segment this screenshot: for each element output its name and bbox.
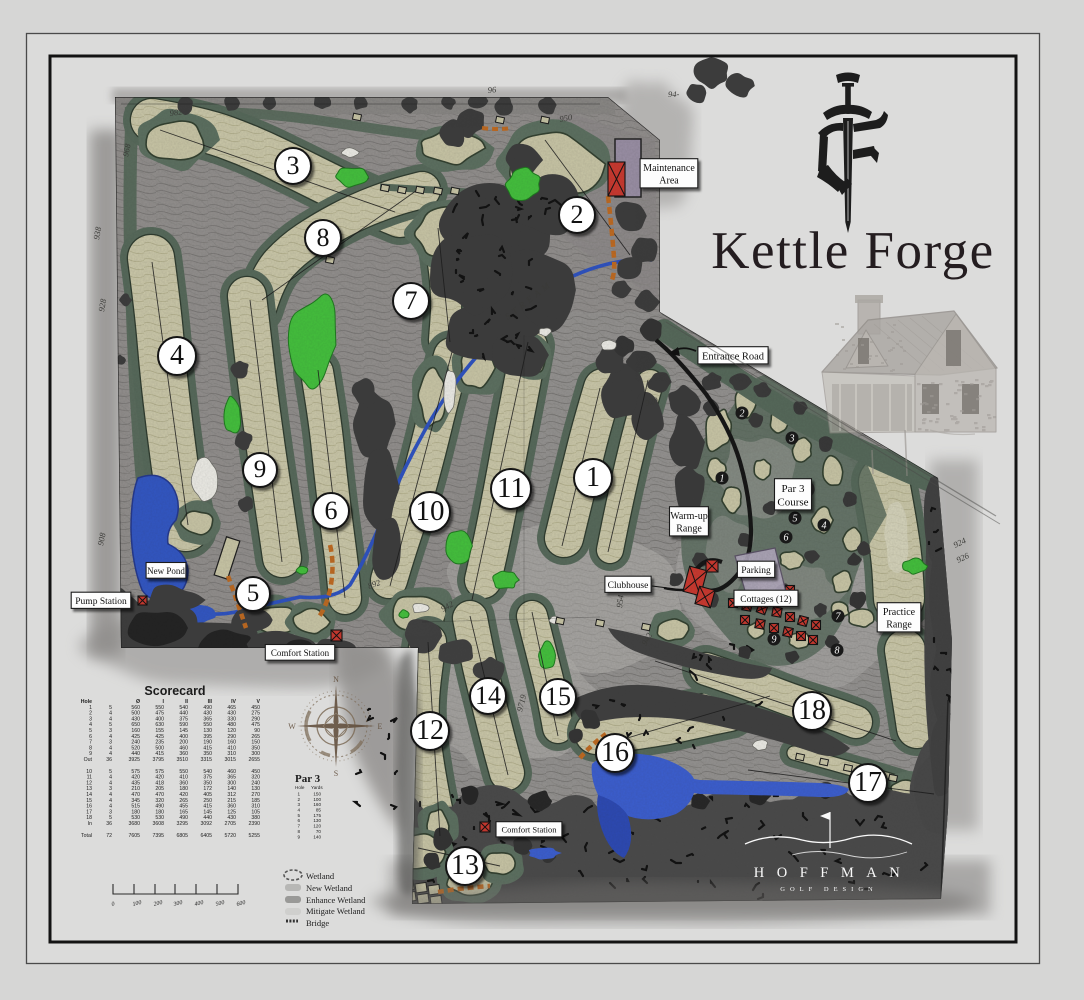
svg-text:Mitigate Wetland: Mitigate Wetland — [306, 906, 366, 916]
svg-text:18: 18 — [798, 695, 826, 726]
svg-text:Warm-up: Warm-up — [670, 511, 708, 522]
svg-text:3: 3 — [789, 434, 795, 445]
svg-text:Scorecard: Scorecard — [144, 684, 205, 698]
svg-text:7395: 7395 — [152, 833, 164, 839]
svg-text:5: 5 — [793, 514, 798, 525]
svg-text:6: 6 — [784, 533, 789, 544]
svg-text:3315: 3315 — [200, 757, 212, 763]
svg-text:1: 1 — [586, 462, 600, 493]
svg-text:14: 14 — [475, 681, 501, 710]
svg-text:3015: 3015 — [224, 757, 236, 763]
svg-text:Kettle Forge: Kettle Forge — [711, 222, 994, 280]
svg-text:3: 3 — [287, 151, 300, 180]
svg-text:Maintenance: Maintenance — [643, 163, 695, 174]
svg-text:12: 12 — [416, 715, 444, 746]
svg-text:3925: 3925 — [128, 757, 140, 763]
svg-text:11: 11 — [497, 472, 525, 504]
svg-text:72: 72 — [106, 833, 112, 839]
svg-text:Range: Range — [676, 524, 702, 535]
svg-text:New Wetland: New Wetland — [306, 883, 353, 893]
svg-text:Total: Total — [81, 833, 92, 839]
svg-text:Par 3: Par 3 — [782, 483, 805, 495]
svg-text:W: W — [288, 722, 296, 731]
svg-text:16: 16 — [601, 737, 629, 768]
svg-text:New Pond: New Pond — [147, 566, 185, 576]
svg-text:3: 3 — [297, 802, 300, 807]
svg-text:Area: Area — [659, 176, 679, 187]
svg-text:2390: 2390 — [248, 821, 260, 827]
svg-text:Range: Range — [886, 620, 912, 631]
svg-text:13: 13 — [451, 850, 479, 881]
svg-text:Par 3: Par 3 — [295, 773, 321, 785]
svg-text:Yards: Yards — [311, 785, 323, 790]
svg-text:160: 160 — [313, 802, 321, 807]
svg-text:2: 2 — [740, 409, 745, 420]
svg-text:3795: 3795 — [152, 757, 164, 763]
svg-text:10: 10 — [416, 495, 445, 527]
svg-text:In: In — [88, 821, 92, 827]
svg-text:5255: 5255 — [248, 833, 260, 839]
svg-text:Cottages (12): Cottages (12) — [740, 594, 791, 605]
svg-text:2: 2 — [571, 200, 584, 229]
svg-text:E: E — [378, 722, 383, 731]
svg-text:130: 130 — [313, 818, 321, 823]
svg-text:5: 5 — [247, 580, 260, 607]
svg-text:Out: Out — [84, 757, 93, 763]
svg-text:8: 8 — [297, 829, 300, 834]
svg-text:Comfort Station: Comfort Station — [501, 825, 557, 835]
svg-text:36: 36 — [106, 757, 112, 763]
svg-text:2: 2 — [297, 797, 300, 802]
svg-text:15: 15 — [545, 682, 571, 711]
svg-text:3295: 3295 — [176, 821, 188, 827]
svg-text:9: 9 — [297, 834, 300, 839]
svg-text:17: 17 — [854, 767, 882, 798]
svg-text:6805: 6805 — [176, 833, 188, 839]
svg-text:7: 7 — [405, 286, 418, 315]
svg-text:140: 140 — [313, 834, 321, 839]
svg-text:120: 120 — [313, 824, 321, 829]
svg-text:1: 1 — [720, 474, 725, 485]
svg-text:8: 8 — [317, 223, 330, 252]
svg-text:HOFFMAN: HOFFMAN — [754, 865, 912, 881]
svg-text:3092: 3092 — [200, 821, 212, 827]
svg-text:954: 954 — [614, 594, 626, 609]
svg-text:6405: 6405 — [200, 833, 212, 839]
svg-text:36: 36 — [106, 821, 112, 827]
svg-text:5720: 5720 — [224, 833, 236, 839]
svg-text:Practice: Practice — [883, 607, 916, 618]
svg-text:GOLF DESIGN: GOLF DESIGN — [780, 886, 877, 893]
svg-text:96: 96 — [487, 84, 497, 95]
svg-text:4: 4 — [170, 340, 184, 371]
svg-text:N: N — [333, 675, 339, 684]
svg-text:5: 5 — [297, 813, 300, 818]
svg-text:Wetland: Wetland — [306, 871, 335, 881]
svg-text:3608: 3608 — [152, 821, 164, 827]
svg-text:6: 6 — [325, 496, 338, 525]
svg-text:3680: 3680 — [128, 821, 140, 827]
svg-text:100: 100 — [313, 797, 321, 802]
svg-text:2655: 2655 — [248, 757, 260, 763]
svg-text:9: 9 — [772, 635, 777, 646]
svg-text:Bridge: Bridge — [306, 918, 329, 928]
svg-text:2705: 2705 — [224, 821, 236, 827]
svg-text:7: 7 — [297, 824, 300, 829]
svg-text:Parking: Parking — [741, 566, 771, 576]
svg-text:4: 4 — [297, 808, 300, 813]
svg-text:Course: Course — [777, 497, 808, 509]
svg-text:6: 6 — [297, 818, 300, 823]
svg-text:85: 85 — [316, 808, 322, 813]
svg-text:Comfort Station: Comfort Station — [271, 648, 330, 658]
svg-text:70: 70 — [316, 829, 322, 834]
svg-text:Enhance Wetland: Enhance Wetland — [306, 895, 366, 905]
svg-text:150: 150 — [313, 792, 321, 797]
svg-text:Hole: Hole — [295, 785, 305, 790]
svg-text:94-: 94- — [668, 89, 680, 99]
svg-text:Clubhouse: Clubhouse — [608, 581, 649, 591]
svg-text:9: 9 — [254, 456, 267, 483]
svg-text:175: 175 — [313, 813, 321, 818]
svg-text:8: 8 — [835, 646, 840, 657]
svg-text:3510: 3510 — [176, 757, 188, 763]
svg-text:7605: 7605 — [128, 833, 140, 839]
svg-text:Pump Station: Pump Station — [75, 597, 127, 607]
svg-text:1: 1 — [297, 792, 300, 797]
svg-text:982: 982 — [169, 106, 184, 118]
svg-text:4: 4 — [822, 521, 827, 532]
svg-text:S: S — [334, 769, 338, 778]
